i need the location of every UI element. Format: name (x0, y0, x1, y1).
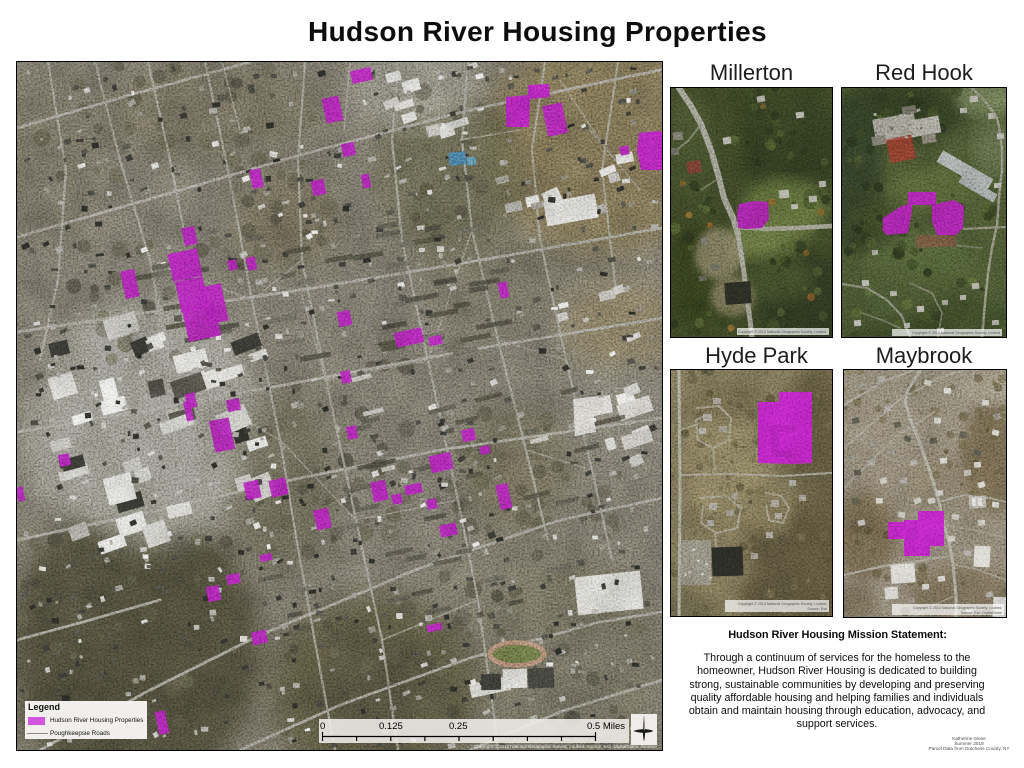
svg-text:Copyright:© 2013 National Geog: Copyright:© 2013 National Geographic Soc… (738, 330, 826, 334)
svg-text:Copyright:© 2013 National Geog: Copyright:© 2013 National Geographic Soc… (912, 331, 1000, 335)
svg-text:Copyright:© 2013 National Geog: Copyright:© 2013 National Geographic Soc… (913, 606, 1002, 610)
svg-text:Copyright:© 2013 National Geog: Copyright:© 2013 National Geographic Soc… (738, 602, 827, 606)
svg-text:Source: Esri: Source: Esri (807, 607, 827, 611)
svg-text:Source: Esri, DigitalGlobe: Source: Esri, DigitalGlobe (961, 611, 1002, 615)
svg-text:Copyright:© 2013 National Geog: Copyright:© 2013 National Geographic Soc… (474, 743, 658, 749)
